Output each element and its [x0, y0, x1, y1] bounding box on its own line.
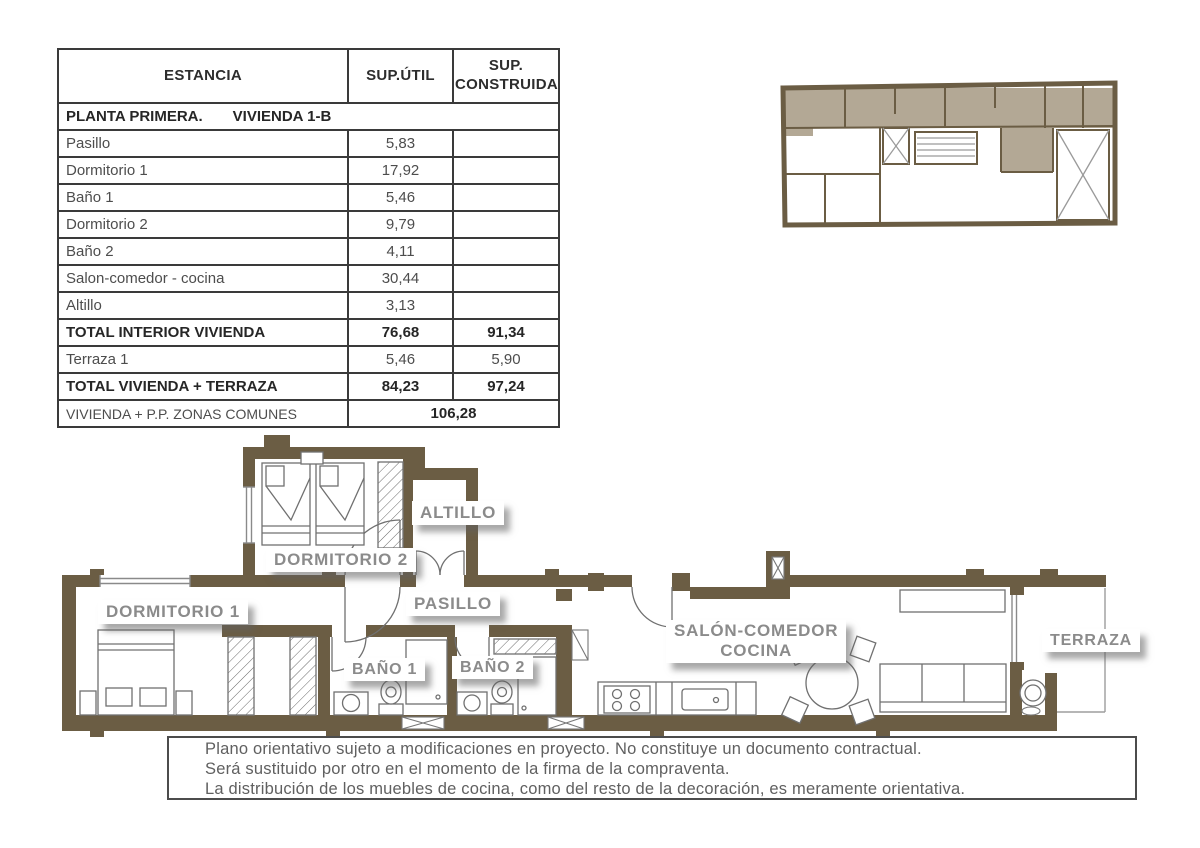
key-plan — [783, 83, 1115, 225]
sup-util-cell: 5,83 — [348, 130, 453, 157]
sup-util-cell: 4,11 — [348, 238, 453, 265]
room-name-cell: Salon-comedor - cocina — [58, 265, 348, 292]
room-label-salon-comedor-cocina: SALÓN-COMEDOR COCINA — [666, 620, 846, 663]
single-bed-icons — [262, 452, 364, 545]
total-vivienda-terraza-row: TOTAL VIVIENDA + TERRAZA 84,23 97,24 — [58, 373, 559, 400]
room-label-dormitorio-1: DORMITORIO 1 — [98, 600, 248, 624]
stove-icon — [604, 686, 650, 713]
room-name-cell: Dormitorio 2 — [58, 211, 348, 238]
sup-util-cell: 3,13 — [348, 292, 453, 319]
room-name-cell: Altillo — [58, 292, 348, 319]
area-table: ESTANCIA SUP.ÚTIL SUP. CONSTRUIDA PLANTA… — [57, 48, 560, 428]
sup-construida-cell: 91,34 — [453, 319, 559, 346]
room-name-cell: TOTAL INTERIOR VIVIENDA — [58, 319, 348, 346]
sup-util-cell: 76,68 — [348, 319, 453, 346]
total-interior-row: TOTAL INTERIOR VIVIENDA 76,68 91,34 — [58, 319, 559, 346]
sup-construida-cell — [453, 130, 559, 157]
sup-construida-cell: 97,24 — [453, 373, 559, 400]
table-row: Baño 2 4,11 — [58, 238, 559, 265]
sup-construida-cell — [453, 292, 559, 319]
col-header-sup-util: SUP.ÚTIL — [348, 49, 453, 103]
col-header-estancia: ESTANCIA — [58, 49, 348, 103]
room-name-cell: Dormitorio 1 — [58, 157, 348, 184]
table-header-row: ESTANCIA SUP.ÚTIL SUP. CONSTRUIDA — [58, 49, 559, 103]
disclaimer-line-3: La distribución de los muebles de cocina… — [205, 779, 1127, 799]
table-row: Altillo 3,13 — [58, 292, 559, 319]
key-plan-courtyard-x — [883, 128, 1109, 220]
room-label-altillo: ALTILLO — [412, 501, 504, 525]
col-header-sup-construida: SUP. CONSTRUIDA — [453, 49, 559, 103]
sup-construida-cell — [453, 184, 559, 211]
room-label-pasillo: PASILLO — [406, 592, 500, 616]
floor-plan — [62, 435, 1106, 737]
room-name-cell: Terraza 1 — [58, 346, 348, 373]
disclaimer-line-1: Plano orientativo sujeto a modificacione… — [205, 739, 1127, 759]
sup-construida-cell — [453, 238, 559, 265]
washing-machine-icon — [1020, 680, 1046, 706]
disclaimer-box: Plano orientativo sujeto a modificacione… — [167, 736, 1137, 800]
sup-construida-cell: 5,90 — [453, 346, 559, 373]
room-label-bano-2: BAÑO 2 — [452, 656, 533, 679]
table-row: Baño 1 5,46 — [58, 184, 559, 211]
salon-label-line1: SALÓN-COMEDOR — [674, 621, 838, 641]
kitchen-sink-icon — [682, 689, 728, 710]
room-name-cell: Baño 1 — [58, 184, 348, 211]
sofa-icon — [880, 664, 1006, 712]
table-row: Pasillo 5,83 — [58, 130, 559, 157]
sup-util-cell: 5,46 — [348, 346, 453, 373]
room-name-cell: TOTAL VIVIENDA + TERRAZA — [58, 373, 348, 400]
table-row: Terraza 1 5,46 5,90 — [58, 346, 559, 373]
merged-total-cell: 106,28 — [348, 400, 559, 427]
sideboard-icon — [900, 590, 1005, 612]
room-name-cell: Baño 2 — [58, 238, 348, 265]
sup-util-cell: 30,44 — [348, 265, 453, 292]
zonas-comunes-row: VIVIENDA + P.P. ZONAS COMUNES 106,28 — [58, 400, 559, 427]
room-label-dormitorio-2: DORMITORIO 2 — [266, 548, 416, 572]
planta-label: PLANTA PRIMERA. — [66, 108, 203, 125]
room-label-bano-1: BAÑO 1 — [344, 658, 425, 681]
room-name-cell: Pasillo — [58, 130, 348, 157]
sup-util-cell: 9,79 — [348, 211, 453, 238]
vivienda-label: VIVIENDA 1-B — [233, 108, 332, 125]
kitchen-counter-icon — [598, 682, 756, 715]
disclaimer-line-2: Será sustituido por otro en el momento d… — [205, 759, 1127, 779]
sup-construida-cell — [453, 157, 559, 184]
sup-construida-cell — [453, 211, 559, 238]
room-name-cell: VIVIENDA + P.P. ZONAS COMUNES — [58, 400, 348, 427]
double-bed-icon — [80, 630, 192, 715]
sup-util-cell: 17,92 — [348, 157, 453, 184]
table-row: Dormitorio 1 17,92 — [58, 157, 559, 184]
section-title-row: PLANTA PRIMERA.VIVIENDA 1-B — [58, 103, 559, 130]
sup-util-cell: 5,46 — [348, 184, 453, 211]
room-label-terraza: TERRAZA — [1042, 629, 1140, 652]
sup-construida-cell — [453, 265, 559, 292]
table-row: Salon-comedor - cocina 30,44 — [58, 265, 559, 292]
table-row: Dormitorio 2 9,79 — [58, 211, 559, 238]
sup-util-cell: 84,23 — [348, 373, 453, 400]
salon-label-line2: COCINA — [674, 641, 838, 661]
